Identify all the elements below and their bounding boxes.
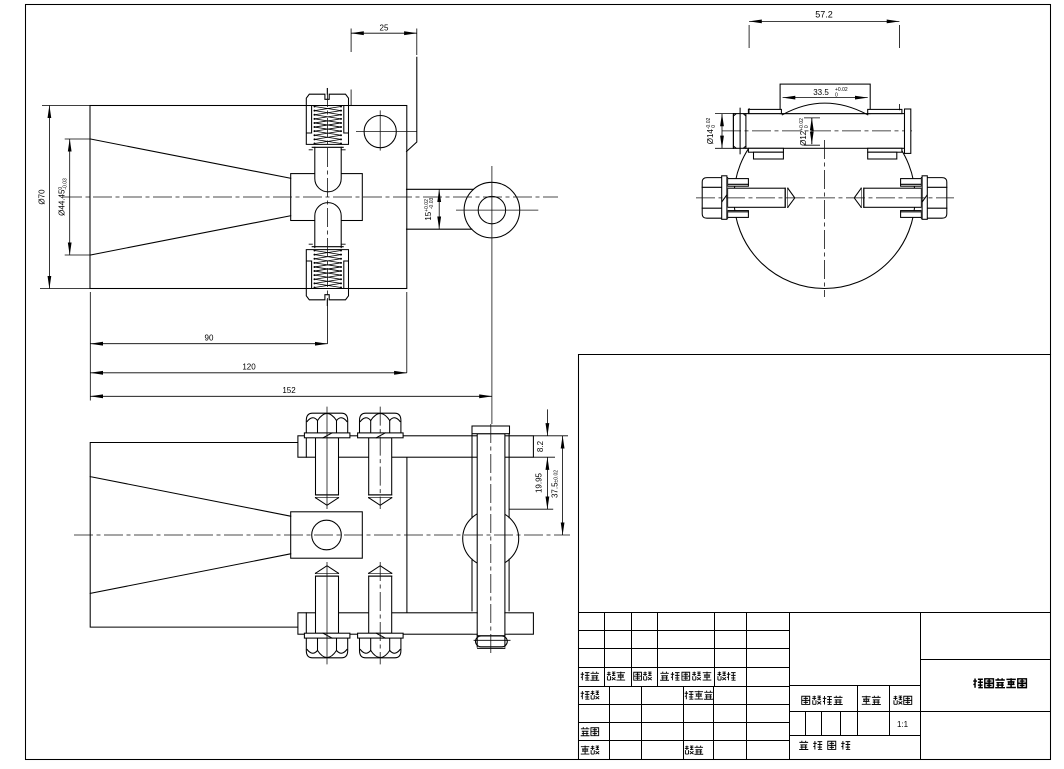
svg-text:120: 120 (242, 363, 256, 372)
svg-text:33.5: 33.5 (813, 88, 829, 97)
svg-text:57.2: 57.2 (815, 10, 833, 20)
svg-text:19.95: 19.95 (535, 472, 544, 493)
svg-text:90: 90 (205, 334, 214, 343)
svg-text:1:1: 1:1 (897, 720, 909, 729)
svg-text:25: 25 (380, 24, 389, 33)
svg-text:8.2: 8.2 (536, 440, 545, 452)
svg-text:Ø70: Ø70 (37, 189, 46, 205)
svg-text:0: 0 (835, 93, 838, 99)
svg-text:152: 152 (282, 386, 296, 395)
